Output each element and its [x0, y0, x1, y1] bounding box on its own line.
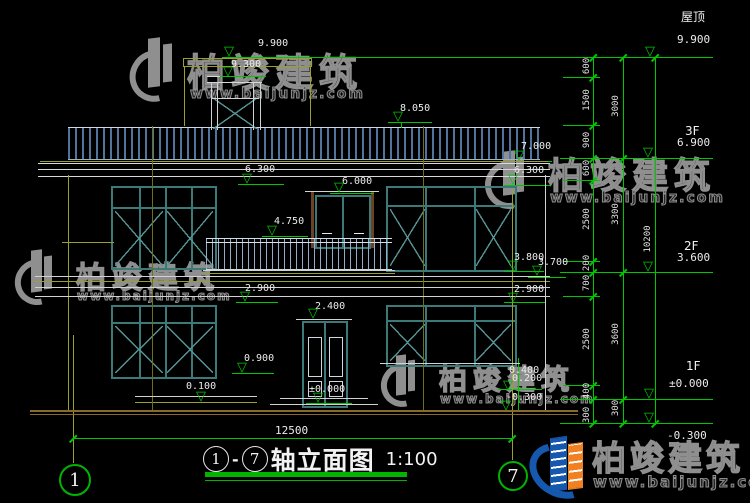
dim-text: 700	[582, 261, 592, 305]
casement-mark	[115, 326, 163, 373]
level-value: 4.750	[274, 216, 304, 227]
window-mullion	[425, 188, 427, 270]
casement-mark	[476, 324, 511, 361]
brand-logo-icon	[534, 437, 596, 499]
level-value: 7.000	[521, 141, 551, 152]
drawing-scale: 1:100	[386, 449, 438, 470]
level-value: 6.300	[514, 165, 544, 176]
level-value: 9.900	[258, 38, 288, 49]
door-swing-arrow-icon	[322, 233, 332, 234]
casement-mark	[476, 209, 511, 266]
ground-line	[30, 410, 578, 412]
level-triangle-icon	[508, 292, 518, 303]
dim-text: 3300	[611, 192, 621, 236]
railing-top-rail	[206, 242, 392, 243]
axis-number: 1	[69, 470, 80, 491]
dim-text: 600	[582, 146, 592, 190]
level-value: 2.400	[315, 301, 345, 312]
axis-line	[40, 161, 548, 162]
level-value: 6.000	[342, 176, 372, 187]
door-swing-arrow-icon	[354, 233, 364, 234]
outline	[35, 296, 550, 297]
level-triangle-icon	[643, 147, 653, 158]
outline	[35, 287, 550, 288]
title-axis-start: 1	[211, 450, 221, 468]
axis-line	[423, 126, 424, 411]
window-transom	[388, 320, 515, 322]
axis-line	[152, 126, 153, 411]
window-transom	[388, 205, 515, 207]
level-triangle-icon	[501, 400, 511, 411]
level-value: 9.300	[231, 59, 261, 70]
balcony-railing-hatch	[206, 238, 392, 270]
casement-mark	[167, 326, 213, 373]
level-value: 0.900	[244, 353, 274, 364]
axis-number: 7	[507, 466, 518, 487]
outline	[253, 82, 254, 130]
title-axis-end-circle: 7	[242, 446, 268, 472]
window-transom	[113, 207, 215, 209]
floor-level-roof: 9.900	[677, 33, 710, 46]
floor-level-1f: ±0.000	[669, 377, 709, 390]
outline	[380, 363, 520, 364]
axis-line	[62, 242, 114, 243]
level-triangle-icon	[313, 392, 323, 403]
axis-bubble-7: 7	[498, 461, 528, 491]
title-axis-end: 7	[250, 450, 260, 468]
level-triangle-icon	[644, 388, 654, 399]
level-triangle-icon	[503, 380, 513, 391]
watermark-url: www.baijunjz.com	[550, 190, 725, 206]
floor-level-3f: 6.900	[677, 136, 710, 149]
eave-band	[38, 163, 550, 177]
level-triangle-icon	[308, 308, 318, 319]
floor-label-roof: 屋顶	[681, 8, 705, 25]
level-triangle-icon	[242, 173, 252, 184]
roof-railing-hatch	[68, 127, 540, 160]
axis-line	[184, 66, 185, 126]
outline	[217, 82, 218, 130]
window-1f-left	[111, 305, 217, 379]
level-triangle-icon	[237, 362, 247, 373]
overall-width-dim: 12500	[275, 424, 308, 437]
outline	[203, 270, 395, 271]
level-value: 0.200	[512, 373, 542, 384]
axis-line	[68, 175, 69, 411]
dim-line	[655, 57, 656, 425]
eave-midline	[38, 169, 550, 170]
window-2f-left	[111, 186, 217, 270]
watermark-url: www.baijunjz.com	[593, 473, 750, 491]
level-value: 2.900	[514, 284, 544, 295]
axis-bubble-1: 1	[59, 464, 91, 496]
cad-elevation-drawing: 柏竣建筑 www.baijunjz.com 柏竣建筑 www.baijunjz.…	[0, 0, 750, 503]
level-value: 8.050	[400, 103, 430, 114]
dim-line	[593, 57, 594, 425]
floor-level-2f: 3.600	[677, 251, 710, 264]
dim-text: 2500	[582, 197, 592, 241]
axis-line	[35, 281, 550, 282]
outline	[270, 404, 378, 405]
dim-line	[623, 57, 624, 425]
outline	[280, 398, 368, 399]
casement-mark	[390, 209, 425, 266]
outline	[211, 98, 259, 99]
level-triangle-icon	[532, 265, 542, 276]
level-triangle-icon	[223, 66, 233, 77]
level-triangle-icon	[393, 111, 403, 122]
level-triangle-icon	[224, 46, 234, 57]
dim-text: 2500	[582, 317, 592, 361]
dim-text: 300	[611, 386, 621, 430]
level-value: -0.300	[506, 392, 542, 403]
title-underline-thin	[205, 480, 407, 481]
axis-line	[310, 66, 311, 126]
level-triangle-icon	[334, 182, 344, 193]
floor-label-1f: 1F	[686, 359, 701, 373]
dim-text: 300	[582, 393, 592, 437]
outline	[545, 175, 546, 411]
dim-text: 10200	[643, 214, 653, 264]
dim-text: 1500	[582, 78, 592, 122]
window-1f-right	[386, 305, 517, 367]
axis-line	[73, 335, 74, 463]
dim-text: 3000	[611, 84, 621, 128]
level-triangle-icon	[508, 260, 518, 271]
casement-mark	[115, 211, 163, 266]
axis-line	[203, 273, 395, 274]
window-transom	[113, 322, 215, 324]
window-mullion	[425, 307, 427, 365]
dim-line	[222, 57, 713, 58]
level-triangle-icon	[644, 412, 654, 423]
level-triangle-icon	[196, 391, 206, 402]
title-dash: -	[232, 450, 239, 469]
level-triangle-icon	[240, 291, 250, 302]
level-triangle-icon	[508, 174, 518, 185]
ground-line	[30, 414, 578, 415]
axis-line	[512, 190, 513, 460]
outline	[35, 276, 550, 277]
door-panel	[308, 337, 322, 377]
level-triangle-icon	[514, 150, 524, 161]
chimney-brace	[213, 98, 257, 129]
window-2f-right	[386, 186, 517, 272]
level-triangle-icon	[267, 225, 277, 236]
door-panel	[329, 337, 343, 377]
title-axis-start-circle: 1	[203, 446, 229, 472]
dim-line	[73, 438, 513, 439]
dim-text: 3600	[611, 312, 621, 356]
casement-mark	[390, 324, 425, 361]
title-underline-thick	[205, 472, 407, 477]
outline	[296, 319, 352, 320]
brand-logo-icon	[135, 38, 179, 102]
level-triangle-icon	[645, 46, 655, 57]
level-value: 3.700	[538, 257, 568, 268]
